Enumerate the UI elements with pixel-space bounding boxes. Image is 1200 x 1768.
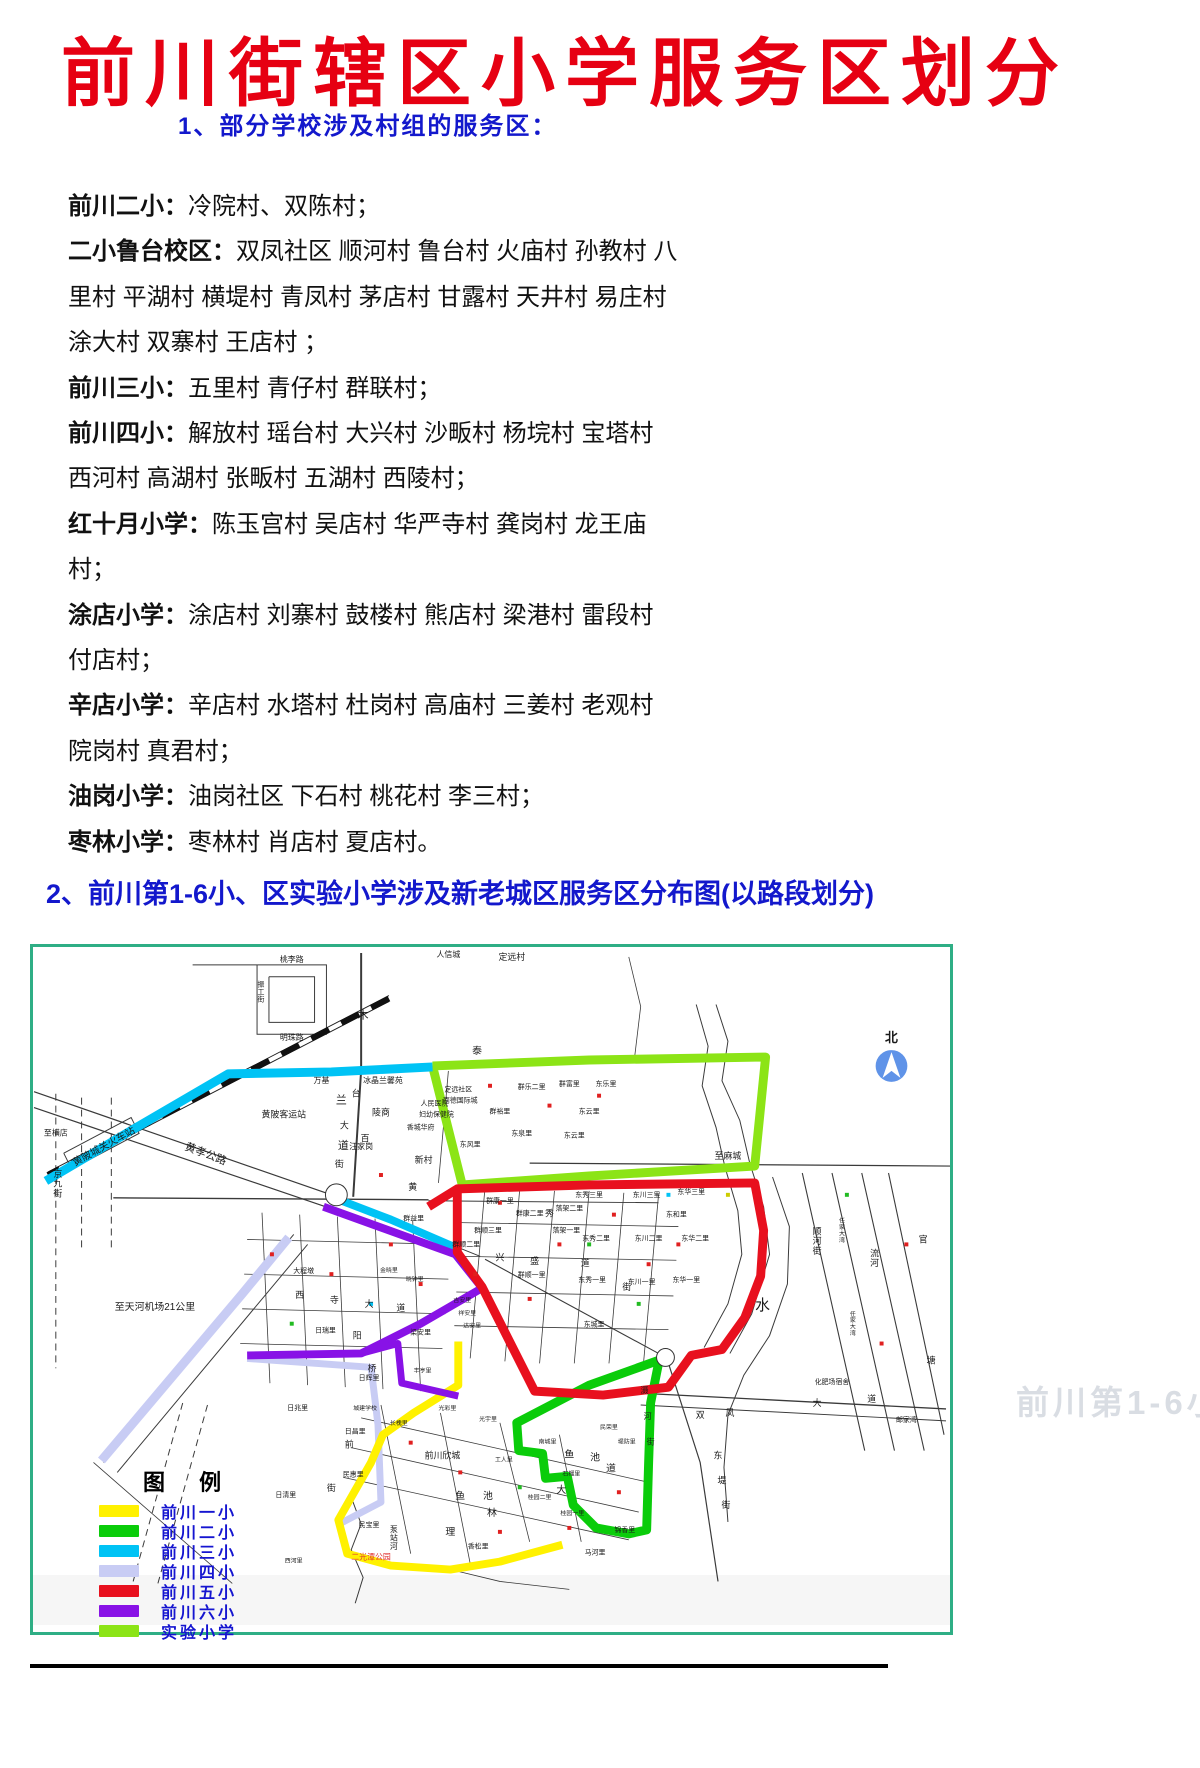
map-label: 群乐二里 xyxy=(518,1082,546,1091)
map-label: 东川三里 xyxy=(633,1190,661,1199)
road xyxy=(460,1223,678,1227)
road xyxy=(429,1201,659,1203)
map-label: 堤防里 xyxy=(618,1438,636,1446)
map-label: 林 xyxy=(487,1506,497,1519)
map-label: 东华三里 xyxy=(677,1187,705,1196)
bottom-divider xyxy=(30,1664,888,1668)
legend-label: 实验小学 xyxy=(161,1619,237,1643)
map-label: 道 xyxy=(606,1461,616,1474)
map-label: 黄 xyxy=(408,1181,417,1192)
map-label: 道 xyxy=(867,1393,876,1404)
map-label: 长槐里 xyxy=(390,1419,408,1427)
map-label: 大程墩 xyxy=(293,1266,314,1275)
school-list: 前川二小：冷院村、双陈村；二小鲁台校区：双凤社区 顺河村 鲁台村 火庙村 孙教村… xyxy=(68,184,682,865)
map-label: 桥 xyxy=(368,1362,377,1373)
school-entry: 油岗小学：油岗社区 下石村 桃花村 李三村； xyxy=(68,774,682,819)
map-dot xyxy=(488,1084,492,1088)
map-label: 落架一里 xyxy=(553,1225,581,1234)
map-label: 流河 xyxy=(870,1247,879,1268)
school-name: 枣林小学： xyxy=(68,829,188,856)
map-label: 盛 xyxy=(530,1255,539,1266)
road xyxy=(458,1256,676,1260)
map-label: 南德国际城 xyxy=(443,1096,478,1105)
map-dot xyxy=(597,1094,601,1098)
map-label: 京九街 xyxy=(53,1168,62,1198)
road xyxy=(440,1413,470,1564)
route-实验小学 xyxy=(433,1057,766,1185)
legend-swatch xyxy=(99,1605,139,1617)
school-entry: 前川二小：冷院村、双陈村； xyxy=(68,184,682,229)
school-name: 前川二小： xyxy=(68,193,188,220)
legend-item: 前川三小 xyxy=(85,1541,315,1561)
road xyxy=(242,1309,445,1314)
map-label: 二光潭公园 xyxy=(351,1552,391,1562)
map-label: 鱼 xyxy=(455,1489,465,1502)
route-前川二小 xyxy=(517,1360,659,1533)
road xyxy=(724,1177,789,1522)
section1-heading: 1、部分学校涉及村组的服务区： xyxy=(178,106,557,141)
map-label: 东秀二里 xyxy=(582,1233,610,1242)
map-label: 南城里 xyxy=(539,1438,557,1446)
map-label: 晓钟里 xyxy=(406,1275,424,1283)
map-label: 光彩里 xyxy=(438,1404,456,1412)
legend-swatch xyxy=(99,1525,139,1537)
map-label: 定远社区 xyxy=(444,1085,472,1094)
map-label: 道 xyxy=(581,1257,590,1268)
map-label: 池 xyxy=(483,1489,493,1502)
map-label: 前 xyxy=(345,1439,354,1450)
school-entry: 前川四小：解放村 瑶台村 大兴村 沙畈村 杨垸村 宝塔村 西河村 高湖村 张畈村… xyxy=(68,411,682,502)
map-label: 梁安里 xyxy=(410,1328,431,1337)
map-label: 水 xyxy=(755,1297,770,1314)
legend-swatch xyxy=(99,1545,139,1557)
school-name: 涂店小学： xyxy=(68,602,188,629)
legend-swatch xyxy=(99,1625,139,1637)
map-label: 振工街 xyxy=(258,980,265,1004)
legend-item: 前川四小 xyxy=(85,1561,315,1581)
map-label: 寺 xyxy=(330,1295,339,1305)
map-label: 城建学校 xyxy=(353,1404,377,1412)
map-label: 百 xyxy=(361,1133,370,1143)
map-label: 香松里 xyxy=(468,1542,489,1551)
school-name: 前川四小： xyxy=(68,420,188,447)
map-label: 万基 xyxy=(314,1075,330,1085)
north-label: 北 xyxy=(885,1030,898,1045)
map-dot xyxy=(389,1242,393,1246)
road xyxy=(269,977,315,1023)
map-label: 东华一里 xyxy=(672,1275,700,1284)
map-label: 日瑞里 xyxy=(315,1326,336,1335)
map-label: 人信城 xyxy=(436,949,460,959)
map-label: 凤 xyxy=(725,1408,734,1418)
school-entry: 前川三小：五里村 青仔村 群联村； xyxy=(68,366,682,411)
map-label: 达安里 xyxy=(463,1322,481,1330)
map-label: 东和里 xyxy=(666,1210,687,1219)
map-dot xyxy=(726,1193,730,1197)
map-label: 顺河街 xyxy=(813,1226,822,1255)
map-label: 妇幼保健院 xyxy=(419,1110,454,1119)
map-label: 群裕里 xyxy=(490,1107,511,1116)
map-label: 东 xyxy=(714,1450,723,1461)
road xyxy=(113,1198,428,1200)
school-name: 红十月小学： xyxy=(68,511,212,538)
map-label: 石榴里 xyxy=(562,1469,580,1477)
map-label: 东风里 xyxy=(460,1139,481,1148)
map-dot xyxy=(845,1193,849,1197)
map-label: 金晓里 xyxy=(380,1266,398,1274)
map-label: 理 xyxy=(445,1526,455,1538)
map-dot xyxy=(548,1104,552,1108)
map-label: 日昌里 xyxy=(345,1428,366,1436)
map-label: 祥安里 xyxy=(458,1309,476,1317)
road xyxy=(832,1173,894,1451)
map-label: 堤 xyxy=(718,1475,727,1485)
school-name: 前川三小： xyxy=(68,375,188,402)
map-label: 至横店 xyxy=(44,1127,68,1137)
map-label: 池 xyxy=(590,1451,600,1464)
map-label: 香城华府 xyxy=(407,1122,435,1131)
map-label: 邮家湾 xyxy=(896,1415,917,1424)
map-label: 街 xyxy=(327,1482,336,1493)
legend-item: 前川二小 xyxy=(85,1521,315,1541)
map-label: 光宇里 xyxy=(479,1415,497,1423)
map-legend: 图 例 前川一小前川二小前川三小前川四小前川五小前川六小实验小学 xyxy=(85,1465,315,1641)
map-label: 大 xyxy=(340,1119,349,1130)
map-label: 东川二里 xyxy=(635,1233,663,1242)
map-label: 大 xyxy=(813,1397,822,1408)
legend-item: 实验小学 xyxy=(85,1621,315,1641)
map-dot xyxy=(587,1242,591,1246)
road xyxy=(240,1344,442,1349)
road xyxy=(257,965,326,1034)
map-label: 泵站河 xyxy=(390,1525,398,1551)
map-label: 任家大湾 xyxy=(839,1217,845,1244)
map-label: 东泉里 xyxy=(511,1128,532,1137)
map-label: 官 xyxy=(919,1233,928,1244)
map-dot xyxy=(528,1297,532,1301)
school-entry: 枣林小学：枣林村 肖店村 夏店村。 xyxy=(68,820,682,865)
map-label: 定远村 xyxy=(498,951,525,962)
map-label: 阳 xyxy=(353,1331,362,1341)
map-label: 街 xyxy=(335,1158,344,1169)
map-label: 至天河机场21公里 xyxy=(115,1300,195,1313)
route-前川六小 xyxy=(247,1207,482,1356)
map-label: 至麻城 xyxy=(715,1150,742,1161)
legend-swatch xyxy=(99,1565,139,1577)
school-entry: 红十月小学：陈玉宫村 吴店村 华严寺村 龚岗村 龙王庙村； xyxy=(68,502,682,593)
map-label: 民宝里 xyxy=(359,1520,380,1529)
map-label: 陵商 xyxy=(372,1107,390,1118)
map-label: 黄陂城关火车站 xyxy=(70,1124,137,1169)
map-label: 任家大湾 xyxy=(850,1310,856,1337)
roundabout xyxy=(325,1184,347,1206)
map-label: 秀 xyxy=(545,1208,554,1219)
map-label: 桂园二里 xyxy=(528,1493,552,1501)
map-label: 西 xyxy=(295,1290,304,1300)
watermark: 前川第1-6小 xyxy=(1016,1376,1200,1424)
road xyxy=(629,957,641,1056)
map-label: 东云里 xyxy=(564,1130,585,1139)
map-label: 新村 xyxy=(415,1154,433,1165)
map-label: 群顺一里 xyxy=(518,1270,546,1279)
map-label: 明珠路 xyxy=(280,1032,304,1042)
map-label: 街 xyxy=(647,1437,655,1447)
map-dot xyxy=(409,1441,413,1445)
map-label: 吉安里 xyxy=(453,1296,471,1304)
map-label: 道 xyxy=(338,1138,349,1152)
map-label: 道 xyxy=(396,1302,405,1313)
map-dot xyxy=(567,1526,571,1530)
map-label: 化肥场宿舍 xyxy=(815,1377,850,1386)
map-label: 锦香里 xyxy=(614,1525,635,1534)
road xyxy=(639,1393,946,1409)
road xyxy=(609,1193,624,1364)
map-label: 大 xyxy=(556,1483,566,1496)
map-label: 街 xyxy=(721,1499,730,1510)
map-label: 台 xyxy=(352,1088,361,1099)
map-dot xyxy=(666,1193,670,1197)
legend-swatch xyxy=(99,1505,139,1517)
map-dot xyxy=(612,1213,616,1217)
map-label: 前川欣城 xyxy=(425,1450,461,1461)
map-dot xyxy=(880,1342,884,1346)
map-dot xyxy=(473,1272,477,1276)
map-dot xyxy=(557,1242,561,1246)
map-dot xyxy=(647,1262,651,1266)
service-area-map: 人信城定远村桃李路明珠路振工街木兰道泰黄陂城关火车站黄孝公路至横店京九街至天河机… xyxy=(30,944,953,1635)
roundabout xyxy=(657,1348,675,1366)
map-label: 大 xyxy=(365,1298,374,1309)
map-label: 东华二里 xyxy=(681,1233,709,1242)
map-dot xyxy=(290,1322,294,1326)
map-label: 泰 xyxy=(472,1044,482,1057)
map-label: 东秀一里 xyxy=(578,1275,606,1284)
map-dot xyxy=(379,1173,383,1177)
map-label: 河 xyxy=(644,1411,652,1421)
map-label: 兴 xyxy=(495,1252,504,1262)
map-label: 落架二里 xyxy=(555,1204,583,1213)
map-label: 群康一里 xyxy=(486,1196,514,1205)
map-label: 马河里 xyxy=(585,1549,606,1557)
map-label: 民荣里 xyxy=(600,1423,618,1431)
route-前川五小 xyxy=(429,1183,764,1395)
map-label: 双 xyxy=(696,1410,705,1420)
map-label: 东乐里 xyxy=(596,1079,617,1088)
school-name: 油岗小学： xyxy=(68,783,188,810)
map-label: 桃李路 xyxy=(280,954,304,964)
map-dot xyxy=(458,1470,462,1474)
road xyxy=(454,1326,668,1330)
map-label: 工人里 xyxy=(495,1456,513,1463)
road xyxy=(862,1173,924,1451)
map-dot xyxy=(270,1252,274,1256)
road xyxy=(413,1221,421,1392)
map-label: 鱼 xyxy=(564,1448,574,1461)
map-label: 群顺三里 xyxy=(474,1225,502,1234)
map-label: 黄陂客运站 xyxy=(262,1109,307,1120)
map-label: 群富里 xyxy=(559,1079,580,1088)
map-dot xyxy=(676,1242,680,1246)
map-label: 民惠里 xyxy=(343,1469,364,1478)
map-label: 木 xyxy=(358,1008,369,1021)
school-entry: 二小鲁台校区：双凤社区 顺河村 鲁台村 火庙村 孙教村 八里村 平湖村 横堤村 … xyxy=(68,229,682,365)
map-dot xyxy=(904,1242,908,1246)
map-label: 群益里 xyxy=(403,1214,424,1223)
map-label: 冰晶兰馨苑 xyxy=(363,1075,403,1085)
map-label: 黄孝公路 xyxy=(183,1139,229,1168)
school-entry: 涂店小学：涂店村 刘寨村 鼓楼村 熊店村 梁港村 雷段村 付店村； xyxy=(68,593,682,684)
map-label: 兰 xyxy=(336,1094,347,1107)
legend-swatch xyxy=(99,1585,139,1597)
legend-item: 前川六小 xyxy=(85,1601,315,1621)
map-dot xyxy=(329,1272,333,1276)
map-dot xyxy=(617,1490,621,1494)
map-label: 东城里 xyxy=(584,1320,605,1329)
school-name: 辛店小学： xyxy=(68,692,188,719)
map-label: 滠 xyxy=(641,1386,649,1395)
map-dot xyxy=(518,1485,522,1489)
map-dot xyxy=(498,1530,502,1534)
map-label: 日辉里 xyxy=(359,1374,380,1382)
map-label: 塘 xyxy=(927,1354,936,1365)
school-entry: 辛店小学：辛店村 水塔村 杜岗村 高庙村 三姜村 老观村 院岗村 真君村； xyxy=(68,683,682,774)
road xyxy=(889,1173,945,1435)
school-name: 二小鲁台校区： xyxy=(68,238,236,265)
map-label: 丰亨里 xyxy=(414,1366,432,1374)
map-label: 群康二里 xyxy=(516,1209,544,1218)
section2-heading: 2、前川第1-6小、区实验小学涉及新老城区服务区分布图(以路段划分) xyxy=(46,872,874,911)
map-dot xyxy=(637,1302,641,1306)
map-label: 东川一里 xyxy=(628,1277,656,1286)
page-title: 前川街辖区小学服务区划分 xyxy=(0,14,1130,121)
map-label: 东秀三里 xyxy=(575,1190,603,1199)
map-label: 东云里 xyxy=(579,1107,600,1116)
route-前川四小 xyxy=(101,1237,288,1460)
legend-item: 前川五小 xyxy=(85,1581,315,1601)
map-label: 桂园一里 xyxy=(560,1509,584,1517)
road xyxy=(34,1092,331,1195)
legend-title: 图 例 xyxy=(143,1465,315,1497)
map-label: 群顺二里 xyxy=(452,1239,480,1248)
map-label: 日兆里 xyxy=(287,1403,308,1412)
legend-item: 前川一小 xyxy=(85,1501,315,1521)
